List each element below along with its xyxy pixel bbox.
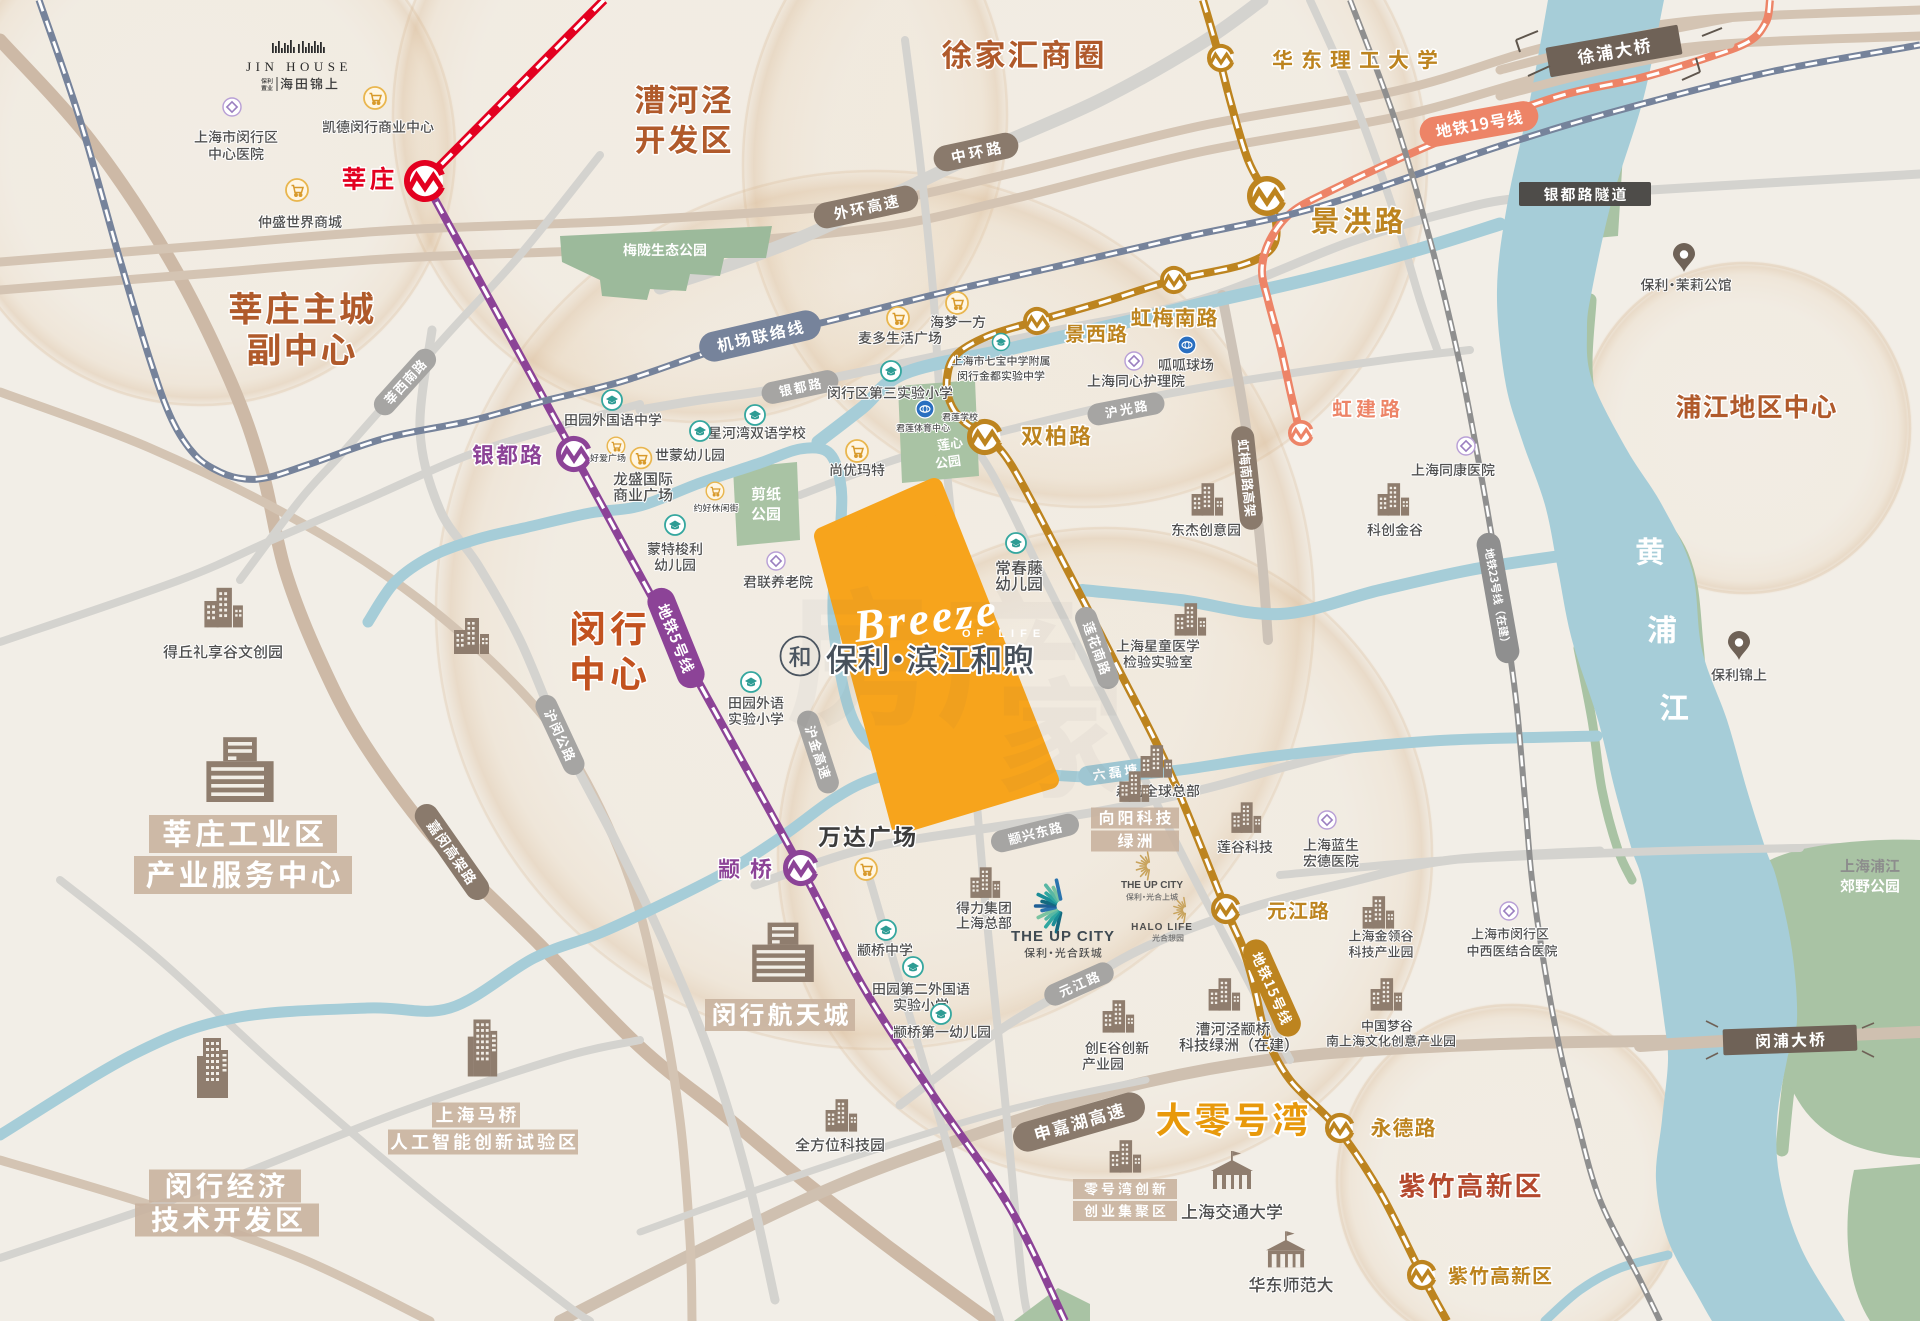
svg-text:OF LIFE: OF LIFE <box>962 628 1046 640</box>
svg-text:THE UP CITY: THE UP CITY <box>1011 928 1115 945</box>
svg-text:THE UP CITY: THE UP CITY <box>1121 880 1183 891</box>
svg-text:JIN HOUSE: JIN HOUSE <box>246 59 352 74</box>
svg-text:HALO LIFE: HALO LIFE <box>1131 922 1193 933</box>
